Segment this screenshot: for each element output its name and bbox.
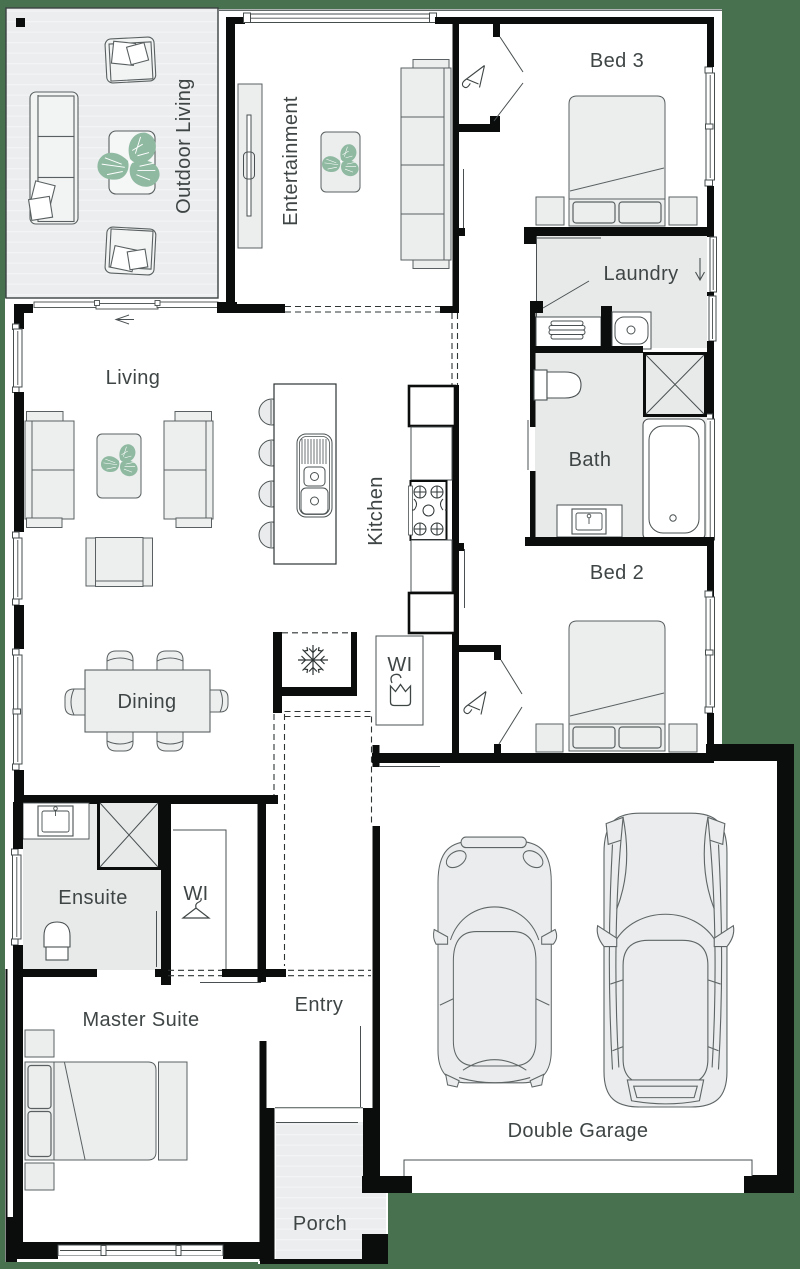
svg-text:WI: WI xyxy=(183,883,208,905)
svg-text:Living: Living xyxy=(106,367,161,389)
svg-text:Entertainment: Entertainment xyxy=(280,96,302,226)
svg-text:Outdoor Living: Outdoor Living xyxy=(173,78,195,214)
svg-text:Entry: Entry xyxy=(295,994,344,1016)
svg-text:Bath: Bath xyxy=(569,449,612,471)
svg-text:Kitchen: Kitchen xyxy=(365,476,387,546)
svg-text:WI: WI xyxy=(387,654,412,676)
svg-text:Bed 2: Bed 2 xyxy=(590,562,644,584)
svg-text:Master Suite: Master Suite xyxy=(82,1009,199,1031)
svg-text:Double Garage: Double Garage xyxy=(508,1120,649,1142)
svg-text:Porch: Porch xyxy=(293,1213,347,1235)
svg-text:Laundry: Laundry xyxy=(603,263,678,285)
svg-text:Bed 3: Bed 3 xyxy=(590,50,644,72)
svg-text:Ensuite: Ensuite xyxy=(58,887,128,909)
svg-text:Dining: Dining xyxy=(117,691,176,713)
